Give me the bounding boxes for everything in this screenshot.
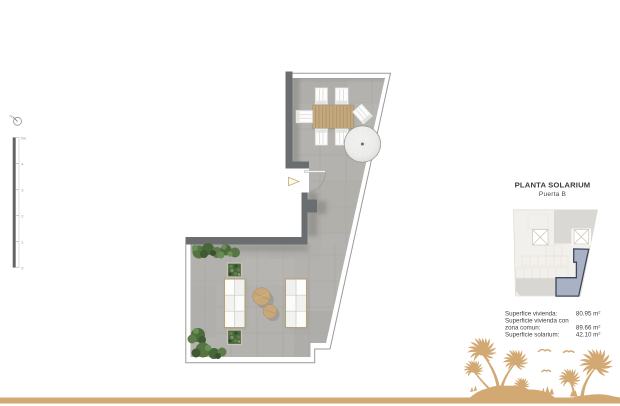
svg-text:5m: 5m <box>21 136 27 141</box>
svg-text:42.10 m2: 42.10 m2 <box>576 331 601 339</box>
svg-text:Superfice vivienda:: Superfice vivienda: <box>505 311 558 318</box>
svg-text:Superficie solarium:: Superficie solarium: <box>505 332 560 339</box>
svg-text:zona comun:: zona comun: <box>505 325 541 332</box>
svg-text:80.95 m2: 80.95 m2 <box>576 310 601 318</box>
svg-text:Superficie vivienda con: Superficie vivienda con <box>505 318 569 325</box>
svg-text:PLANTA SOLARIUM: PLANTA SOLARIUM <box>515 181 591 190</box>
svg-text:N: N <box>10 115 13 119</box>
svg-text:Puerta B: Puerta B <box>539 191 567 198</box>
